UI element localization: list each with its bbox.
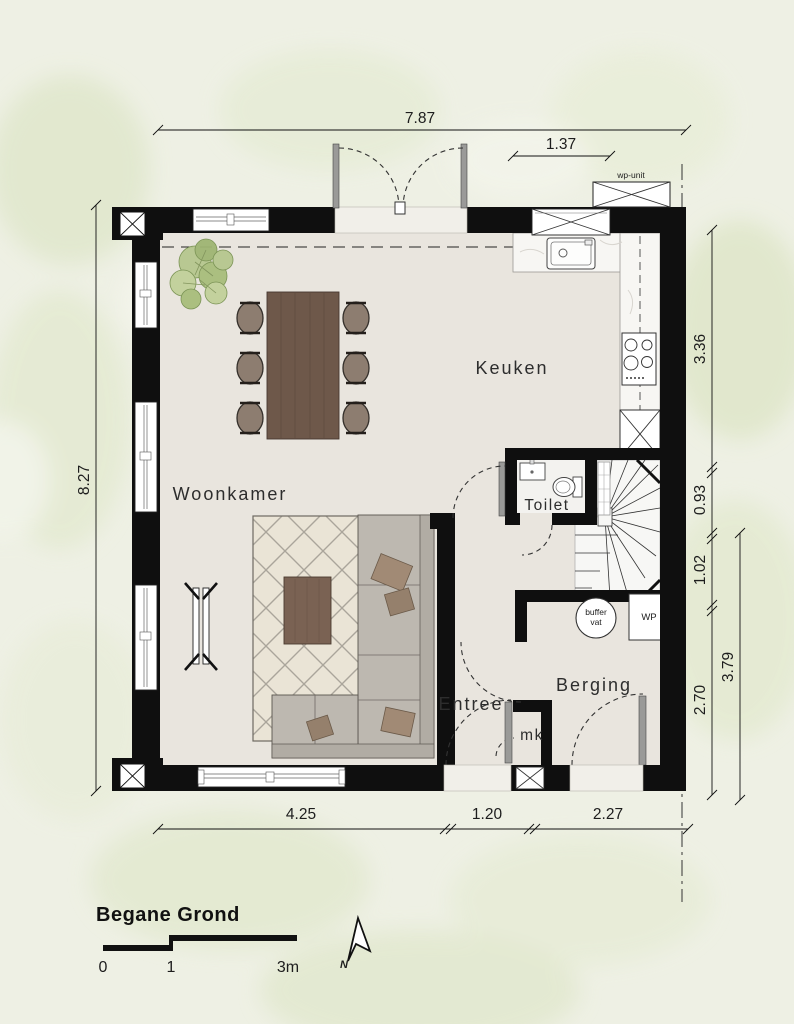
floor-plan-page: buffer vat WP	[0, 0, 794, 1024]
scale-one: 1	[167, 959, 176, 976]
dim-right-stairs: 1.02	[692, 555, 709, 585]
cooktop	[622, 333, 656, 385]
stair-shaft-panel	[598, 462, 610, 515]
coffee-table	[284, 577, 331, 644]
front-door-leaf	[505, 702, 512, 763]
dining-set	[237, 292, 369, 439]
heat-pump-label: WP	[641, 612, 656, 623]
dim-top-kitchen-window: 1.37	[546, 136, 576, 153]
front-door-opening	[444, 765, 511, 791]
french-door-leaf-left	[333, 144, 339, 208]
buffer-vat: buffer vat	[576, 598, 616, 638]
buffer-vat-label-2: vat	[590, 617, 602, 627]
floor-title: Begane Grond	[96, 904, 240, 926]
dining-table	[267, 292, 339, 439]
berging-door-leaf	[639, 696, 646, 765]
room-label-keuken: Keuken	[475, 358, 548, 378]
kitchen-sink	[547, 238, 595, 269]
room-label-meterkast: mk	[520, 727, 544, 744]
scale-three-m: 3m	[277, 959, 299, 976]
dim-right-berging: 2.70	[692, 685, 709, 716]
north-label: N	[340, 959, 349, 971]
scale-zero: 0	[99, 959, 108, 976]
dim-top-total: 7.87	[405, 110, 435, 127]
room-label-berging: Berging	[556, 675, 632, 695]
window-bottom	[198, 767, 345, 787]
buffer-vat-label-1: buffer	[585, 607, 607, 617]
window-left-3	[135, 585, 157, 690]
window-left-2	[135, 402, 157, 512]
berging-door-opening	[570, 765, 643, 791]
dim-right-kitchen: 3.36	[692, 334, 709, 364]
floor-plan-svg: buffer vat WP	[0, 0, 794, 1024]
room-label-woonkamer: Woonkamer	[173, 484, 288, 504]
room-label-entree: Entree	[438, 694, 503, 714]
french-door-leaf-right	[461, 144, 467, 208]
window-left-1	[135, 262, 157, 328]
hall-door-leaf	[499, 462, 505, 516]
dim-right-toilet: 0.93	[692, 485, 709, 515]
dim-right-lower-total: 3.79	[720, 652, 737, 682]
wp-unit-label: wp-unit	[616, 170, 645, 180]
dim-bottom-entree: 1.20	[472, 806, 503, 823]
room-label-toilet: Toilet	[524, 497, 569, 514]
meterkast-grille	[516, 767, 544, 789]
window-kitchen-fixed	[532, 209, 610, 235]
dim-bottom-woonkamer: 4.25	[286, 806, 316, 823]
dim-left-total: 8.27	[76, 465, 93, 495]
dim-bottom-berging: 2.27	[593, 806, 623, 823]
window-top	[193, 209, 269, 231]
toilet-fixture	[553, 477, 582, 497]
